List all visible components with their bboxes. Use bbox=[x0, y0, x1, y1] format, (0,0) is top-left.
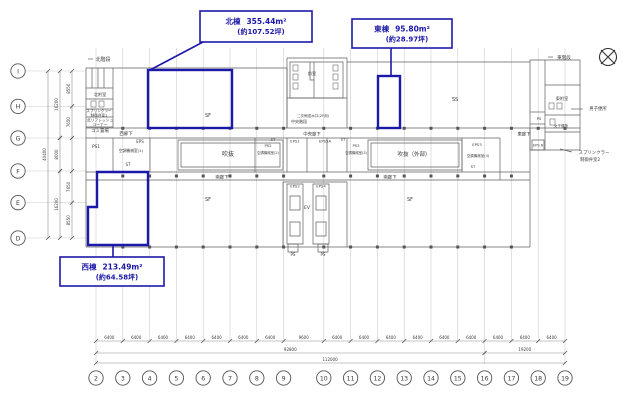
wall-segment bbox=[560, 149, 572, 152]
north-wing-tsubo: (約107.52坪) bbox=[237, 27, 284, 36]
room-label-ss: SS bbox=[452, 97, 458, 103]
highlight-west-wing bbox=[88, 172, 148, 245]
room-label-mens_toilet: 男子便所 bbox=[589, 105, 607, 112]
room-label-sprinkler2_l2: 制御弁室2 bbox=[580, 156, 601, 163]
wall-segment bbox=[316, 196, 326, 210]
wall-segment bbox=[530, 60, 580, 150]
column-marker bbox=[349, 246, 352, 249]
grid-bubble-row-label: G bbox=[16, 135, 21, 142]
dim-text: 6400 bbox=[185, 335, 196, 340]
column-marker bbox=[456, 246, 459, 249]
dim-text: 7650 bbox=[66, 117, 71, 128]
wall-segment bbox=[316, 222, 326, 236]
column-marker bbox=[282, 175, 285, 178]
column-marker bbox=[456, 127, 459, 130]
column-marker bbox=[255, 175, 258, 178]
toilet-fixture bbox=[549, 103, 554, 109]
room-label-north_stair: 北階段 bbox=[95, 56, 110, 63]
structural-grid-lines bbox=[26, 48, 565, 364]
wall-segment bbox=[288, 244, 298, 252]
column-marker bbox=[229, 246, 232, 249]
dim-text: 6400 bbox=[212, 335, 223, 340]
grid-bubble-row-label: H bbox=[16, 104, 21, 111]
dim-text: 6400 bbox=[413, 335, 424, 340]
dim-text: 6400 bbox=[359, 335, 370, 340]
highlight-east-wing bbox=[378, 76, 400, 128]
east-wing-area: 95.80m² bbox=[395, 25, 430, 34]
wall-segment bbox=[287, 184, 303, 244]
column-marker bbox=[430, 127, 433, 130]
room-label-ac4: 空調機械室(4) bbox=[467, 153, 490, 158]
toilet-fixture bbox=[333, 65, 338, 71]
west-wing-tsubo: (約64.58坪) bbox=[96, 273, 139, 282]
dim-text: 6400 bbox=[131, 335, 142, 340]
column-marker bbox=[322, 127, 325, 130]
dim-text: 6400 bbox=[466, 335, 477, 340]
grid-bubble-col-label: 5 bbox=[174, 375, 178, 382]
floor-plan-page: 北棟355.44m² (約107.52坪) 東棟95.80m² (約28.97坪… bbox=[0, 0, 640, 401]
room-label-refresh_l2: コーナー bbox=[92, 122, 107, 127]
column-marker bbox=[349, 127, 352, 130]
room-label-womens_toilet: 女子便所 bbox=[554, 123, 569, 128]
column-marker bbox=[121, 127, 124, 130]
room-label-sprinkler2_l1: スプリンクラー bbox=[579, 150, 610, 156]
dim-text: 6400 bbox=[158, 335, 169, 340]
grid-bubble-col-label: 2 bbox=[94, 375, 98, 382]
column-marker bbox=[282, 246, 285, 249]
grid-bubble-col-label: 9 bbox=[282, 375, 286, 382]
room-label-north_annex: 北附室 bbox=[94, 91, 107, 98]
room-label-sprinkler1_l1: スプリンクラー bbox=[86, 108, 112, 113]
room-label-ac1: 空調機械室(1) bbox=[119, 148, 144, 153]
room-label-ps2: PS2 bbox=[264, 143, 272, 148]
grid-bubble-col-label: 19 bbox=[561, 375, 569, 382]
dim-text: 6400 bbox=[265, 335, 276, 340]
room-label-eps6: EPS 6 bbox=[533, 144, 544, 148]
room-label-east_stair: 東階段 bbox=[557, 54, 571, 61]
wall-segment bbox=[313, 184, 329, 244]
column-marker bbox=[202, 246, 205, 249]
room-label-void_east: 吹抜（外部） bbox=[397, 150, 430, 158]
column-marker bbox=[483, 175, 486, 178]
grid-bubble-col-label: 17 bbox=[507, 375, 515, 382]
room-label-water_inlet: 二次側送水口(2F用) bbox=[297, 113, 330, 118]
room-label-corridor_south: 南廊下 bbox=[215, 174, 229, 181]
room-label-ac3: 空調機械室(3) bbox=[345, 150, 367, 155]
column-marker bbox=[282, 127, 285, 130]
room-labels: 北階段北附室スプリンクラー制御弁室1北リフレッシュコーナーゴミ置場PS1EPS空… bbox=[86, 54, 609, 257]
room-label-ev: EV bbox=[304, 205, 311, 211]
column-marker bbox=[175, 175, 178, 178]
wall-segment bbox=[290, 196, 300, 210]
east-wing-label-box bbox=[352, 19, 452, 48]
room-label-st: ST bbox=[126, 162, 132, 167]
room-label-corridor_west: 西廊下 bbox=[119, 130, 133, 137]
column-marker bbox=[121, 175, 124, 178]
toilet-fixture bbox=[333, 83, 338, 89]
dim-text: 8550 bbox=[66, 215, 71, 226]
grid-bubble-col-label: 8 bbox=[255, 375, 259, 382]
grid-bubble-col-label: 11 bbox=[347, 375, 355, 382]
room-label-ps: PS bbox=[321, 252, 326, 257]
north-wing-name: 北棟 bbox=[225, 16, 240, 26]
north-arrow-icon bbox=[600, 49, 617, 66]
room-label-void_west: 吹抜 bbox=[222, 150, 234, 158]
room-label-garbage: ゴミ置場 bbox=[91, 127, 109, 134]
grid-bubble-row-label: E bbox=[16, 200, 20, 207]
column-marker bbox=[376, 246, 379, 249]
room-label-sf: SF bbox=[205, 197, 211, 203]
grid-bubble-col-label: 6 bbox=[201, 375, 205, 382]
room-label-eps2: EPS2 bbox=[290, 184, 300, 189]
column-marker bbox=[322, 175, 325, 178]
dim-text: 40400 bbox=[42, 148, 47, 161]
room-label-ps1: PS1 bbox=[92, 144, 100, 149]
column-marker bbox=[349, 175, 352, 178]
column-marker bbox=[483, 127, 486, 130]
dim-text: 6400 bbox=[332, 335, 343, 340]
room-label-st: ST bbox=[471, 164, 476, 169]
column-marker bbox=[510, 127, 513, 130]
column-marker bbox=[430, 246, 433, 249]
grid-bubble-col-label: 16 bbox=[481, 375, 489, 382]
highlight-north-wing bbox=[148, 70, 232, 128]
room-label-st: ST bbox=[271, 137, 276, 142]
east-wing-tsubo: (約28.97坪) bbox=[386, 35, 429, 44]
wall-segment bbox=[290, 222, 300, 236]
column-marker bbox=[403, 175, 406, 178]
room-label-anteroom: 前室 bbox=[308, 70, 316, 77]
dim-text: 6400 bbox=[547, 335, 558, 340]
grid-bubble-col-label: 7 bbox=[228, 375, 232, 382]
dim-text: 19200 bbox=[518, 347, 531, 352]
dim-text: 16200 bbox=[54, 198, 59, 211]
floor-plan-svg: 北棟355.44m² (約107.52坪) 東棟95.80m² (約28.97坪… bbox=[0, 0, 640, 401]
dim-text: 6400 bbox=[386, 335, 397, 340]
column-marker bbox=[403, 127, 406, 130]
room-label-sf: SF bbox=[205, 113, 211, 119]
toilet-fixture bbox=[293, 65, 298, 71]
grid-bubble-col-label: 18 bbox=[534, 375, 542, 382]
room-label-eps_w: EPS bbox=[136, 139, 144, 144]
column-marker bbox=[376, 175, 379, 178]
room-label-ps: PS bbox=[537, 116, 542, 121]
grid-bubble-col-label: 14 bbox=[427, 375, 435, 382]
column-marker bbox=[483, 246, 486, 249]
column-marker bbox=[537, 127, 540, 130]
dim-text: 6400 bbox=[238, 335, 249, 340]
grid-bubble-col-label: 3 bbox=[121, 375, 125, 382]
west-wing-area: 213.49m² bbox=[102, 263, 142, 272]
toilet-fixture bbox=[293, 83, 298, 89]
wall-segment bbox=[283, 182, 347, 247]
column-marker bbox=[403, 246, 406, 249]
room-label-ps: PS bbox=[291, 252, 296, 257]
room-label-east_annex: 東附室 bbox=[556, 95, 569, 102]
grid-bubble-col-label: 10 bbox=[320, 375, 328, 382]
north-wing-area: 355.44m² bbox=[246, 17, 286, 26]
room-label-corridor_center: 中央廊下 bbox=[303, 131, 321, 138]
room-label-ac2: 空調機械室(2) bbox=[257, 150, 279, 155]
column-marker bbox=[510, 246, 513, 249]
dim-text: 8000 bbox=[54, 149, 59, 160]
room-label-eps3: EPS3 bbox=[472, 142, 482, 147]
east-wing-name: 東棟 bbox=[374, 24, 389, 34]
column-marker bbox=[510, 175, 513, 178]
toilet-fixture bbox=[99, 101, 104, 107]
grid-bubble-col-label: 4 bbox=[148, 375, 152, 382]
dim-text: 6400 bbox=[439, 335, 450, 340]
dim-text: 16200 bbox=[54, 98, 59, 111]
toilet-fixture bbox=[557, 103, 562, 109]
west-wing-label-title: 西棟213.49m² bbox=[81, 262, 142, 272]
room-label-center_stair: 中央階段 bbox=[291, 118, 307, 124]
column-marker bbox=[456, 175, 459, 178]
room-label-corridor_east: 東廊下 bbox=[517, 131, 531, 138]
dim-text: 6400 bbox=[520, 335, 531, 340]
column-marker bbox=[255, 127, 258, 130]
west-wing-name: 西棟 bbox=[81, 262, 96, 272]
column-marker bbox=[175, 246, 178, 249]
dim-text: 112000 bbox=[322, 357, 338, 362]
dim-text: 92800 bbox=[284, 347, 297, 352]
room-label-eps5a: EPS5A bbox=[319, 139, 332, 144]
column-marker bbox=[255, 246, 258, 249]
toilet-fixture bbox=[91, 101, 96, 107]
room-label-st: ST bbox=[341, 137, 346, 142]
east-wing-label-title: 東棟95.80m² bbox=[374, 24, 430, 34]
room-label-corridor_south: 南廊下 bbox=[383, 174, 397, 181]
column-marker bbox=[229, 175, 232, 178]
grid-bubble-col-label: 13 bbox=[400, 375, 408, 382]
dim-text: 7650 bbox=[66, 181, 71, 192]
dim-text: 8550 bbox=[66, 83, 71, 94]
room-label-eps1: EPS1 bbox=[290, 139, 300, 144]
dim-text: 9600 bbox=[299, 335, 310, 340]
north-wing-label-title: 北棟355.44m² bbox=[225, 16, 286, 26]
column-marker bbox=[430, 175, 433, 178]
toilet-fixture bbox=[293, 74, 298, 80]
toilet-fixture bbox=[333, 74, 338, 80]
room-label-sf: SF bbox=[407, 197, 413, 203]
column-marker bbox=[202, 175, 205, 178]
grid-bubble-row-label: D bbox=[16, 235, 21, 242]
north-wing-label-box bbox=[200, 11, 312, 42]
grid-bubble-col-label: 12 bbox=[373, 375, 381, 382]
room-label-ps3: PS3 bbox=[352, 143, 360, 148]
column-marker bbox=[322, 246, 325, 249]
dim-text: 6400 bbox=[493, 335, 504, 340]
west-wing-label-box bbox=[60, 257, 164, 286]
room-label-eps4: EPS4 bbox=[316, 184, 326, 189]
grid-bubble-row-label: I bbox=[17, 68, 19, 75]
grid-bubble-row-label: F bbox=[16, 168, 20, 175]
grid-bubble-col-label: 15 bbox=[454, 375, 462, 382]
dim-text: 6400 bbox=[104, 335, 115, 340]
